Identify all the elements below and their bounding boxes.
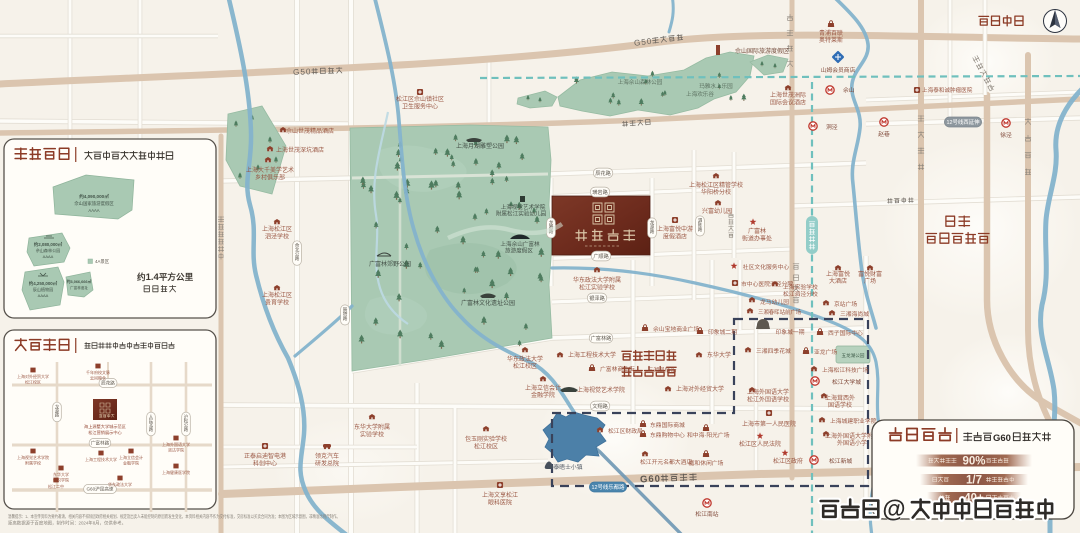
svg-text:松江开元名都大酒店: 松江开元名都大酒店 <box>640 458 692 466</box>
svg-text:上海立信会计: 上海立信会计 <box>525 384 561 392</box>
svg-text:上海泰和诚肿瘤医院: 上海泰和诚肿瘤医院 <box>922 86 973 94</box>
svg-text:徐泾: 徐泾 <box>1000 131 1012 139</box>
svg-text:上海视觉艺术学院: 上海视觉艺术学院 <box>17 454 49 460</box>
svg-text:12号线乐都路: 12号线乐都路 <box>592 483 626 491</box>
svg-text:三湘四季花城: 三湘四季花城 <box>756 347 791 355</box>
svg-text:上海月湖雕塑公园: 上海月湖雕塑公园 <box>456 142 504 150</box>
svg-text:上海松江科技广场: 上海松江科技广场 <box>822 366 869 374</box>
svg-text:山姆会员商店: 山姆会员商店 <box>821 66 856 74</box>
svg-text:松江二中: 松江二中 <box>48 483 64 489</box>
svg-text:金融学院: 金融学院 <box>531 391 555 399</box>
svg-text:松江区政府: 松江区政府 <box>773 457 803 465</box>
svg-text:上海松江区精管学校: 上海松江区精管学校 <box>689 181 743 189</box>
svg-text:路: 路 <box>343 315 348 322</box>
svg-text:贵育学校: 贵育学校 <box>265 299 289 307</box>
svg-text:松江南站: 松江南站 <box>695 510 718 518</box>
svg-text:松江新城: 松江新城 <box>829 457 852 465</box>
svg-text:国际会议酒店: 国际会议酒店 <box>770 99 806 107</box>
svg-text:上海外国语大学: 上海外国语大学 <box>747 388 789 396</box>
svg-text:@: @ <box>882 496 905 523</box>
svg-text:广顺路: 广顺路 <box>593 252 609 260</box>
svg-text:松江校区: 松江校区 <box>25 378 41 384</box>
svg-text:兴富幼儿园: 兴富幼儿园 <box>702 207 732 215</box>
svg-text:科创中心: 科创中心 <box>253 460 277 468</box>
svg-text:上海外国语大学: 上海外国语大学 <box>162 441 190 447</box>
svg-text:广富林商业街: 广富林商业街 <box>600 365 635 373</box>
svg-text:旅游度假区: 旅游度假区 <box>505 247 533 255</box>
svg-text:松江大学城: 松江大学城 <box>832 378 861 386</box>
svg-text:东华大学: 东华大学 <box>707 351 731 359</box>
svg-text:辰山植物园: 辰山植物园 <box>33 286 53 292</box>
svg-text:辰花路: 辰花路 <box>595 169 611 177</box>
svg-text:90%: 90% <box>962 456 985 468</box>
svg-text:G60: G60 <box>993 433 1011 444</box>
svg-text:G50: G50 <box>293 67 312 77</box>
svg-text:上海文享松江: 上海文享松江 <box>482 491 518 499</box>
svg-text:约4,250,000㎡: 约4,250,000㎡ <box>29 280 58 287</box>
svg-text:东鼎国际商城: 东鼎国际商城 <box>650 421 685 429</box>
svg-text:青浦百联: 青浦百联 <box>819 29 843 37</box>
svg-text:辰花路: 辰花路 <box>101 380 115 387</box>
svg-text:上海视觉艺术学院: 上海视觉艺术学院 <box>577 386 625 394</box>
svg-text:三湘风情街: 三湘风情街 <box>648 366 677 374</box>
svg-text:上海市第一人民医院: 上海市第一人民医院 <box>742 420 796 428</box>
svg-text:上海工程技术大学: 上海工程技术大学 <box>85 456 117 462</box>
svg-text:泗泾学校: 泗泾学校 <box>265 233 289 241</box>
svg-text:玛雅水上乐园: 玛雅水上乐园 <box>699 82 733 90</box>
svg-text:银泽路: 银泽路 <box>589 294 605 302</box>
svg-text:佘山宝地商业广场: 佘山宝地商业广场 <box>653 325 700 333</box>
svg-text:上海世茂深坑酒店: 上海世茂深坑酒店 <box>276 146 324 154</box>
svg-text:研发总院: 研发总院 <box>315 460 339 468</box>
svg-text:路: 路 <box>698 226 703 233</box>
svg-text:广富林路: 广富林路 <box>591 334 613 342</box>
svg-text:龙马幼儿园: 龙马幼儿园 <box>760 298 789 306</box>
svg-text:包玉刚实验学校: 包玉刚实验学校 <box>465 435 507 443</box>
svg-text:千年府校文脉: 千年府校文脉 <box>86 369 110 375</box>
svg-text:东华大学附属: 东华大学附属 <box>354 423 390 431</box>
svg-text:亚龙广场: 亚龙广场 <box>814 348 837 356</box>
svg-text:金融学院: 金融学院 <box>123 459 139 465</box>
svg-text:上海外国语大学附属: 上海外国语大学附属 <box>825 432 879 440</box>
svg-text:12号线西延伸: 12号线西延伸 <box>947 118 981 126</box>
svg-text:松江区佘山镇社区: 松江区佘山镇社区 <box>396 95 444 103</box>
svg-text:佘山国家旅游度假区: 佘山国家旅游度假区 <box>74 200 114 207</box>
svg-text:上海富悦中游: 上海富悦中游 <box>657 225 693 233</box>
svg-text:温馨提示：1、本宣传资料为要约邀请，相关内容不排除因政府相关: 温馨提示：1、本宣传资料为要约邀请，相关内容不排除因政府相关规划、规定及出卖人未… <box>8 513 340 520</box>
svg-text:上海富悦: 上海富悦 <box>826 270 850 278</box>
svg-text:度假酒店: 度假酒店 <box>663 232 687 240</box>
svg-text:眼科医院: 眼科医院 <box>488 499 512 507</box>
svg-text:上海视觉艺术学院: 上海视觉艺术学院 <box>501 203 546 211</box>
svg-text:东华大学: 东华大学 <box>53 471 69 477</box>
svg-text:距离数据源于百度地图，制作时间：2024年8月，仅供参考。: 距离数据源于百度地图，制作时间：2024年8月，仅供参考。 <box>8 520 126 527</box>
svg-text:路: 路 <box>650 228 655 235</box>
svg-text:路: 路 <box>184 426 189 433</box>
svg-text:上海健康医学院: 上海健康医学院 <box>162 469 190 475</box>
svg-text:松江泗泾分校: 松江泗泾分校 <box>783 290 818 298</box>
svg-text:广富林: 广富林 <box>748 227 766 235</box>
svg-text:上海城建职业学院: 上海城建职业学院 <box>830 417 877 425</box>
svg-text:AAAA: AAAA <box>38 293 49 298</box>
svg-text:路: 路 <box>149 426 154 433</box>
svg-text:上海佘山森林公园: 上海佘山森林公园 <box>618 78 663 86</box>
svg-text:佘山国际旅游度假区: 佘山国际旅游度假区 <box>735 47 789 55</box>
svg-text:路: 路 <box>55 412 60 419</box>
svg-text:外国语小学: 外国语小学 <box>837 439 867 447</box>
svg-text:G60: G60 <box>640 474 661 486</box>
svg-text:大酒店: 大酒店 <box>829 277 847 285</box>
svg-text:嘉和休闲广场: 嘉和休闲广场 <box>689 459 724 467</box>
svg-text:华东政法大学: 华东政法大学 <box>108 481 132 487</box>
svg-text:广富林郊野公园: 广富林郊野公园 <box>369 260 411 268</box>
svg-text:京站广场: 京站广场 <box>834 300 857 308</box>
svg-text:AAAA: AAAA <box>43 254 54 259</box>
svg-text:松江实验学校: 松江实验学校 <box>579 284 615 292</box>
svg-text:璜岩路: 璜岩路 <box>592 188 608 196</box>
svg-text:文翔路: 文翔路 <box>592 402 608 410</box>
svg-text:上海佘山广富林: 上海佘山广富林 <box>500 240 540 248</box>
svg-text:广富林文化遗址公园: 广富林文化遗址公园 <box>461 299 515 307</box>
svg-text:海上源墅大学城示范区: 海上源墅大学城示范区 <box>84 423 126 430</box>
svg-text:赵巷: 赵巷 <box>878 130 890 138</box>
svg-text:街道办事处: 街道办事处 <box>742 234 772 242</box>
svg-text:实验学校: 实验学校 <box>360 431 384 439</box>
svg-text:松江区财政局: 松江区财政局 <box>608 427 643 435</box>
svg-text:五龙湖公园: 五龙湖公园 <box>842 352 865 359</box>
svg-text:华东政法大学附属: 华东政法大学附属 <box>573 276 621 284</box>
svg-text:上海松江区: 上海松江区 <box>262 291 292 299</box>
svg-text:上海世茂洲际: 上海世茂洲际 <box>770 91 806 99</box>
svg-text:奥特莱斯: 奥特莱斯 <box>819 36 843 44</box>
svg-text:富悦财富: 富悦财富 <box>858 270 882 278</box>
svg-text:上海大千美学艺术: 上海大千美学艺术 <box>246 166 294 174</box>
svg-text:三湘海尚城: 三湘海尚城 <box>840 310 869 318</box>
svg-text:印象城二期: 印象城二期 <box>708 328 737 336</box>
svg-text:松江区人民法院: 松江区人民法院 <box>739 440 781 448</box>
svg-text:松江校区: 松江校区 <box>474 443 498 451</box>
svg-text:附属松江实验幼儿园: 附属松江实验幼儿园 <box>496 210 547 218</box>
svg-text:广富林遗址: 广富林遗址 <box>70 285 88 290</box>
svg-text:三湘春晖站前广场: 三湘春晖站前广场 <box>758 308 802 316</box>
svg-text:东鼎购物中心: 东鼎购物中心 <box>650 431 685 439</box>
svg-text:上海对外经贸大学: 上海对外经贸大学 <box>676 385 724 393</box>
svg-text:正泰启迪智电港: 正泰启迪智电港 <box>244 452 286 460</box>
svg-text:上海工程技术大学: 上海工程技术大学 <box>568 351 616 359</box>
svg-text:洞泾: 洞泾 <box>826 123 838 131</box>
svg-text:广场: 广场 <box>864 277 876 285</box>
svg-text:华阳桥分校: 华阳桥分校 <box>701 188 731 196</box>
svg-text:1/7: 1/7 <box>966 475 982 487</box>
svg-text:上海实验学校: 上海实验学校 <box>783 283 818 291</box>
svg-text:AAAA: AAAA <box>88 208 99 213</box>
svg-text:上海松江区: 上海松江区 <box>262 225 292 233</box>
svg-text:广富林路: 广富林路 <box>91 440 110 447</box>
svg-text:乡村俱乐部: 乡村俱乐部 <box>255 174 285 182</box>
svg-text:卫生服务中心: 卫生服务中心 <box>402 103 438 111</box>
svg-text:上海欢乐谷: 上海欢乐谷 <box>686 90 714 98</box>
svg-text:约1.4平方公里: 约1.4平方公里 <box>137 271 194 283</box>
svg-text:和中海·阳光广场: 和中海·阳光广场 <box>687 431 730 439</box>
svg-text:国语学校: 国语学校 <box>828 401 852 409</box>
svg-text:西子国际中心: 西子国际中心 <box>828 329 863 337</box>
svg-text:云间粮仓: 云间粮仓 <box>90 374 106 380</box>
svg-text:佘山森林公园: 佘山森林公园 <box>36 247 61 253</box>
svg-text:佘山: 佘山 <box>843 86 855 94</box>
svg-text:附属学校: 附属学校 <box>25 459 41 465</box>
svg-text:约3,066,666㎡: 约3,066,666㎡ <box>67 279 92 284</box>
svg-text:松江外国语学校: 松江外国语学校 <box>747 396 789 404</box>
svg-text:领克汽车: 领克汽车 <box>315 452 339 460</box>
svg-text:松江校区: 松江校区 <box>513 362 537 370</box>
svg-text:佘山世茂精品酒店: 佘山世茂精品酒店 <box>286 127 334 135</box>
svg-text:上海茸西外: 上海茸西外 <box>825 394 855 402</box>
svg-text:泰晤士小镇: 泰晤士小镇 <box>554 463 583 471</box>
svg-text:印象城一期: 印象城一期 <box>776 328 805 336</box>
svg-text:上海对外经贸大学: 上海对外经贸大学 <box>17 373 49 379</box>
svg-text:华东政法大学: 华东政法大学 <box>507 355 543 363</box>
svg-text:约4,090,000㎡: 约4,090,000㎡ <box>79 193 109 200</box>
svg-text:路: 路 <box>295 255 300 262</box>
svg-text:约2,080,000㎡: 约2,080,000㎡ <box>34 241 63 248</box>
svg-text:社区文化服务中心: 社区文化服务中心 <box>743 263 790 271</box>
svg-text:贤达学院: 贤达学院 <box>168 446 184 452</box>
svg-text:松江营销展示中心: 松江营销展示中心 <box>88 429 122 436</box>
svg-text:上海立信会计: 上海立信会计 <box>119 454 143 460</box>
